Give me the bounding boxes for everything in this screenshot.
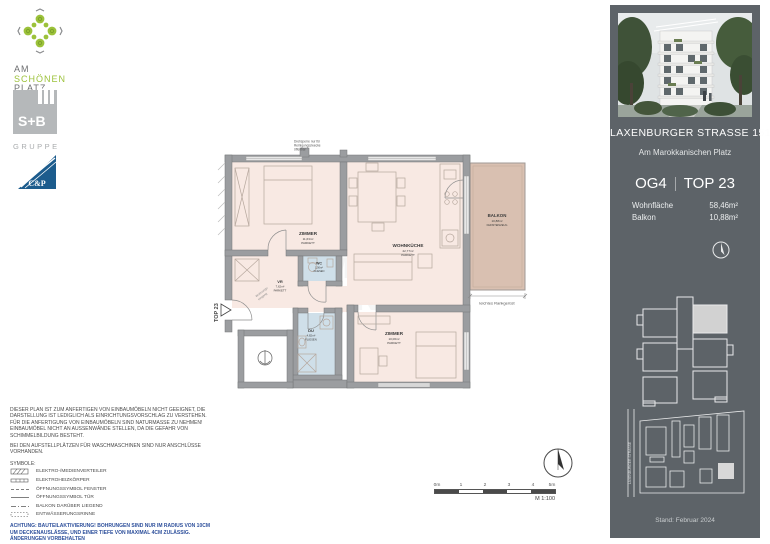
svg-text:FLIESEN: FLIESEN xyxy=(314,269,325,273)
divider xyxy=(675,177,676,191)
symbol-elektro-medienverteiler-icon xyxy=(10,468,32,475)
svg-text:DU: DU xyxy=(308,328,314,333)
building-rendering xyxy=(618,13,752,117)
address-title: LAXENBURGER STRASSE 151G xyxy=(610,127,760,139)
floor-key-plan xyxy=(635,295,735,407)
legend-row: ELEKTROHEIZKÖRPER xyxy=(10,477,210,484)
svg-text:1,56m²: 1,56m² xyxy=(315,266,323,270)
entry-arrow-icon xyxy=(221,304,231,316)
svg-text:VR: VR xyxy=(277,279,283,284)
svg-text:PARKETT: PARKETT xyxy=(401,253,415,257)
sb-logo-icon: S+B xyxy=(13,88,57,134)
legend-row: ENTWÄSSERUNGSRINNE xyxy=(10,511,210,518)
address-subtitle: Am Marokkanischen Platz xyxy=(610,148,760,157)
section-ticks xyxy=(218,163,225,235)
svg-text:FLIESEN: FLIESEN xyxy=(305,338,317,342)
symbol-balkon-darueber-icon xyxy=(10,503,32,510)
warning-note: ACHTUNG: BAUTEILAKTIVIERUNG! BOHRUNGEN S… xyxy=(10,523,210,543)
svg-text:BALKON: BALKON xyxy=(488,213,507,218)
sb-gruppe-logo: S+B GRUPPE xyxy=(13,88,73,151)
metric-row: Balkon 10,88m² xyxy=(632,213,738,222)
metric-value: 10,88m² xyxy=(709,213,738,222)
scale-bar-segments xyxy=(435,490,555,493)
symbol-elektroheizkoerper-icon xyxy=(10,477,32,484)
highlighted-building xyxy=(718,463,734,479)
symbol-oeffnung-fenster-icon xyxy=(10,486,32,493)
info-sidebar: LAXENBURGER STRASSE 151G Am Marokkanisch… xyxy=(610,5,760,538)
scale-tick: 2 xyxy=(478,483,492,488)
svg-text:FEINSTEINZEUG: FEINSTEINZEUG xyxy=(487,223,508,227)
legend-row: ELEKTRO-/MEDIENVERTEILER xyxy=(10,468,210,475)
street-label: LAXENBURGER STRASSE xyxy=(628,441,632,484)
legend-row: ÖFFNUNGSSYMBOL FENSTER xyxy=(10,486,210,493)
floor-label: OG4 xyxy=(635,175,667,192)
expose-sheet: AM SCHÖNEN PLATZ S+B GRUPPE C&P IMMO KON… xyxy=(0,0,770,544)
metric-row: Wohnfläche 58,46m² xyxy=(632,201,738,210)
unit-line: OG4 TOP 23 xyxy=(610,175,760,192)
legal-paragraph-2: BEI DEN AUFSTELLPLÄTZEN FÜR WASCHMASCHIN… xyxy=(10,443,210,456)
symbol-oeffnung-tuer-icon xyxy=(10,494,32,501)
area-metrics: Wohnfläche 58,46m² Balkon 10,88m² xyxy=(632,201,738,225)
site-plan: LAXENBURGER STRASSE xyxy=(620,407,750,499)
scale-tick: 4 xyxy=(526,483,540,488)
date-stamp: Stand: Februar 2024 xyxy=(610,517,760,524)
scale-tick: 0m xyxy=(430,483,444,488)
scale-ratio: M 1:100 xyxy=(515,496,555,502)
sb-subtitle: GRUPPE xyxy=(13,142,73,151)
symbols-title: SYMBOLE: xyxy=(10,461,210,467)
sb-wordmark: S+B xyxy=(18,113,46,129)
metric-label: Balkon xyxy=(632,213,656,222)
asp-ornament-icon xyxy=(14,8,66,58)
scale-tick: 1 xyxy=(454,483,468,488)
svg-text:ZIMMER: ZIMMER xyxy=(299,231,318,236)
scale-bar: 0m 1 2 3 4 5m M 1:100 xyxy=(435,483,559,505)
unit-tag: TOP 23 xyxy=(214,303,220,322)
legend-row: BALKON DARÜBER LIEGEND xyxy=(10,503,210,510)
svg-text:öffenbar: öffenbar xyxy=(294,148,307,152)
metric-label: Wohnfläche xyxy=(632,201,673,210)
cp-logo-icon: C&P xyxy=(13,152,59,192)
svg-text:ZIMMER: ZIMMER xyxy=(385,331,404,336)
symbol-entwaesserungsrinne-icon xyxy=(10,511,32,518)
metric-value: 58,46m² xyxy=(709,201,738,210)
legal-paragraph-1: DIESER PLAN IST ZUM ANFERTIGEN VON EINBA… xyxy=(10,407,210,439)
scale-tick: 3 xyxy=(502,483,516,488)
north-compass-sidebar-icon xyxy=(710,239,732,261)
svg-text:WOHNKÜCHE: WOHNKÜCHE xyxy=(393,242,424,248)
cp-logo: C&P xyxy=(13,152,63,197)
svg-text:PARKETT: PARKETT xyxy=(274,289,287,293)
svg-text:PARKETT: PARKETT xyxy=(301,241,315,245)
svg-text:PARKETT: PARKETT xyxy=(387,341,401,345)
svg-text:WC: WC xyxy=(316,262,322,266)
cp-wordmark: C&P xyxy=(28,179,45,188)
legend-row: ÖFFNUNGSSYMBOL TÜR xyxy=(10,494,210,501)
highlighted-unit xyxy=(693,305,727,333)
trellis-dimension xyxy=(468,293,527,299)
svg-text:10,88m²: 10,88m² xyxy=(491,219,502,223)
legal-notes: DIESER PLAN IST ZUM ANFERTIGEN VON EINBA… xyxy=(10,407,210,543)
trellis-label: leichtes Rankgerüst xyxy=(479,301,515,306)
north-compass-icon xyxy=(538,443,578,483)
unit-label: TOP 23 xyxy=(684,175,735,192)
scale-tick: 5m xyxy=(545,483,559,488)
floor-plan: IMMO KONTOR xyxy=(208,136,576,408)
am-schoenen-platz-logo: AM SCHÖNEN PLATZ xyxy=(14,8,100,94)
